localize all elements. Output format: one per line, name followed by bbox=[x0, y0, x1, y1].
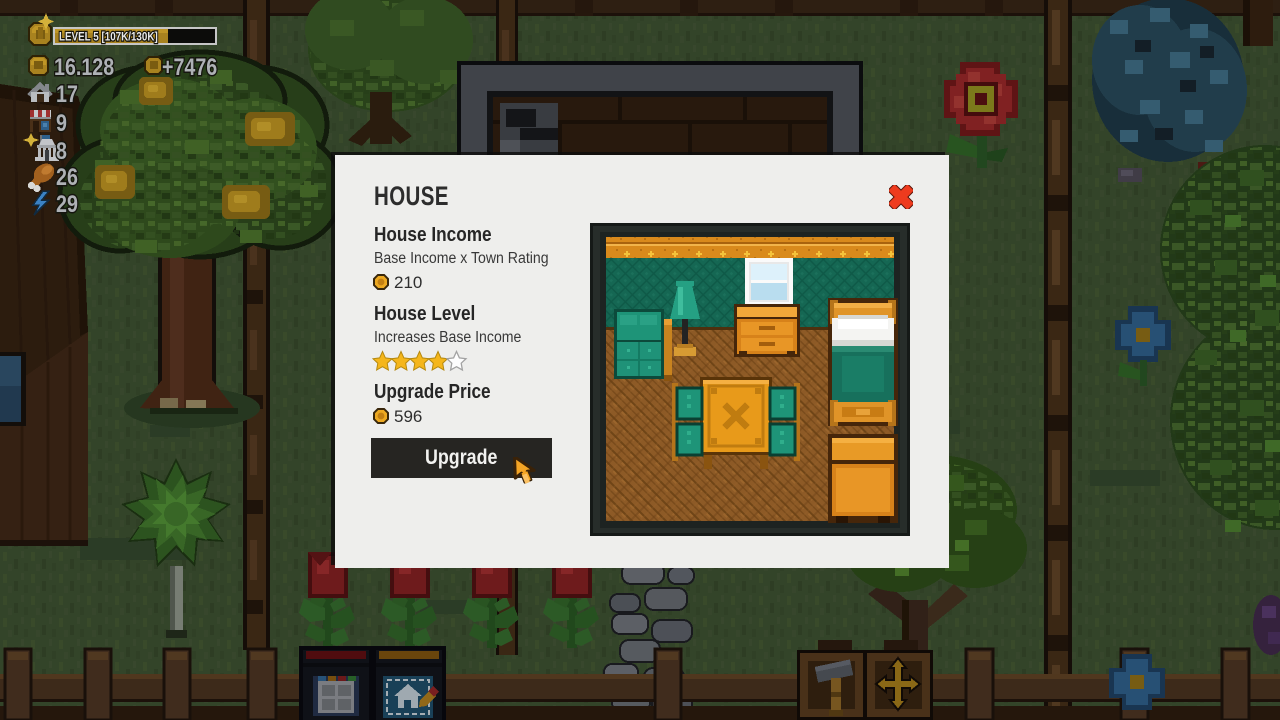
svg-text:9: 9 bbox=[56, 109, 67, 136]
svg-text:17: 17 bbox=[56, 80, 78, 107]
svg-text:26: 26 bbox=[56, 163, 78, 190]
svg-text:29: 29 bbox=[56, 190, 78, 217]
svg-text:+7476: +7476 bbox=[162, 53, 217, 80]
svg-text:LEVEL 5 [107K/130K]: LEVEL 5 [107K/130K] bbox=[59, 31, 158, 44]
svg-text:16.128: 16.128 bbox=[54, 53, 114, 80]
svg-text:8: 8 bbox=[56, 137, 67, 164]
